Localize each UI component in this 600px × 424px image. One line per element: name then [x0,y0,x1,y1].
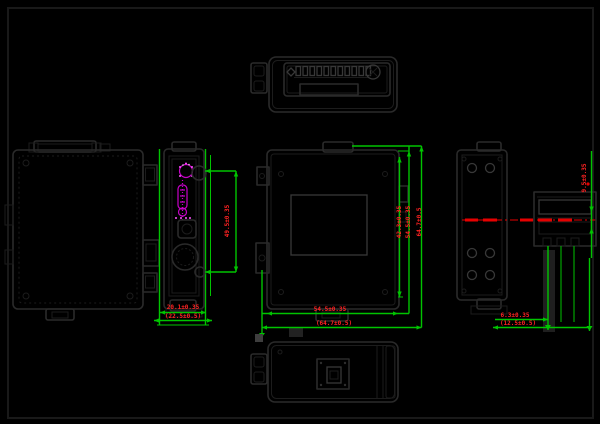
side-depth-overall-dimension: (22.5±0.5) [165,314,201,320]
detail-rail-height-dimension: 9.5±0.35 [582,164,588,193]
bottom-view [251,342,398,402]
cad-viewport[interactable]: 49.5±0.35 20.1±0.35 (22.5±0.5) 42.3±0.35… [0,0,600,424]
front-height-mid-dimension: 54.5±0.35 [406,206,412,239]
front-height-overall-dimension: 64.7±0.5 [417,208,423,237]
side-depth-dimension: 20.1±0.35 [167,305,200,311]
front-left-view [5,141,159,320]
front-width-dimension: 54.5±0.35 [314,307,347,313]
side-height-dimension: 49.5±0.35 [225,205,231,238]
right-side-view [457,142,507,314]
detail-width-overall-dimension: (12.5±0.5) [500,321,536,327]
front-width-overall-dimension: (64.7±0.5) [316,321,352,327]
top-view [251,57,397,112]
detail-width-inner-dimension: 6.3±0.35 [501,313,530,319]
drawing-sheet [0,0,600,424]
front-height-inner-dimension: 42.3±0.35 [397,206,403,239]
